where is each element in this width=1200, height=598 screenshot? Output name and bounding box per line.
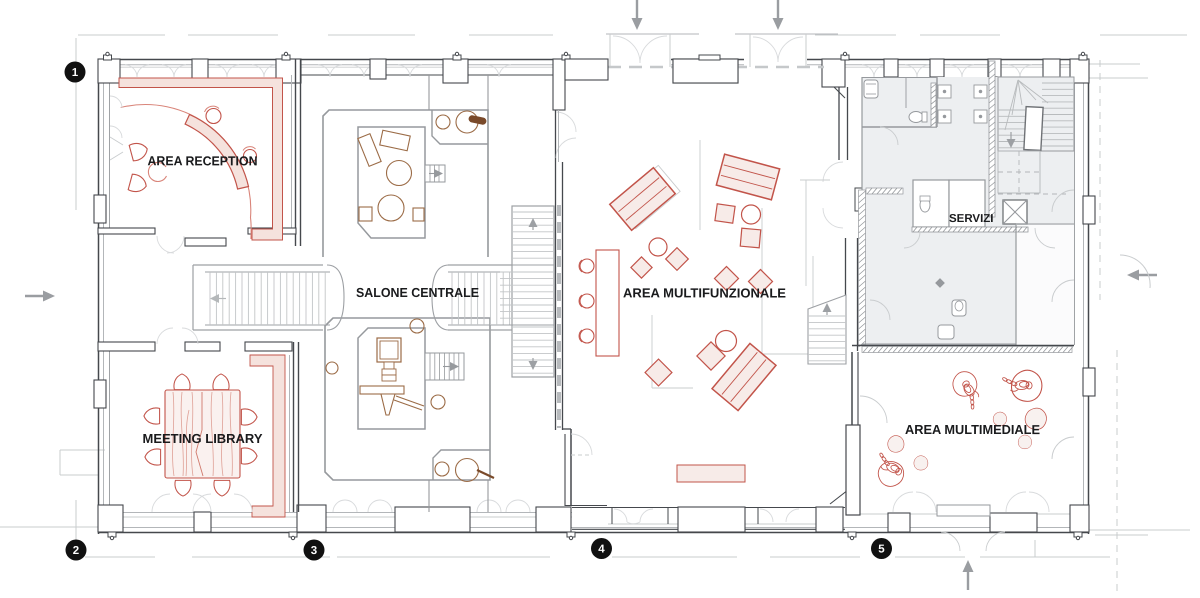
svg-text:MEETING LIBRARY: MEETING LIBRARY xyxy=(142,431,262,446)
svg-text:SERVIZI: SERVIZI xyxy=(949,213,994,225)
svg-text:4: 4 xyxy=(598,543,605,555)
svg-text:AREA RECEPTION: AREA RECEPTION xyxy=(147,153,257,168)
svg-text:AREA MULTIMEDIALE: AREA MULTIMEDIALE xyxy=(905,422,1040,437)
svg-text:5: 5 xyxy=(878,543,885,555)
svg-text:1: 1 xyxy=(72,67,79,79)
svg-text:2: 2 xyxy=(73,545,79,557)
svg-text:SALONE CENTRALE: SALONE CENTRALE xyxy=(356,285,479,300)
svg-text:3: 3 xyxy=(311,545,317,557)
svg-text:AREA MULTIFUNZIONALE: AREA MULTIFUNZIONALE xyxy=(623,285,786,300)
